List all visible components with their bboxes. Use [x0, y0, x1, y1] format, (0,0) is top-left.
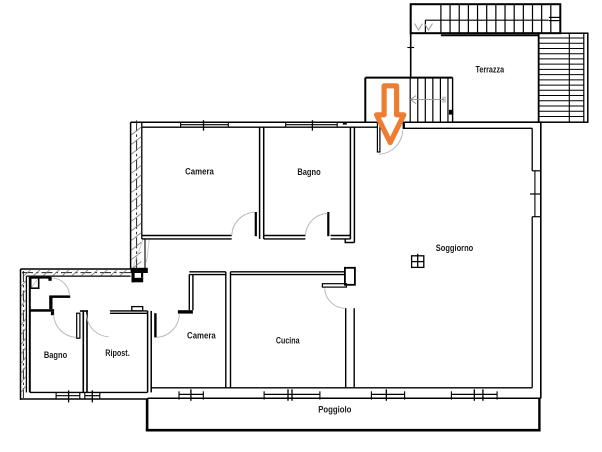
- svg-text:Poggiolo: Poggiolo: [318, 405, 352, 415]
- svg-text:Soggiorno: Soggiorno: [436, 243, 474, 253]
- svg-text:Cucina: Cucina: [276, 336, 300, 346]
- svg-text:Terrazza: Terrazza: [476, 64, 505, 74]
- svg-text:Ripost.: Ripost.: [105, 348, 129, 358]
- svg-text:Bagno: Bagno: [44, 350, 68, 360]
- svg-text:Camera: Camera: [187, 331, 217, 341]
- svg-text:Camera: Camera: [185, 167, 215, 177]
- svg-text:Bagno: Bagno: [297, 167, 321, 177]
